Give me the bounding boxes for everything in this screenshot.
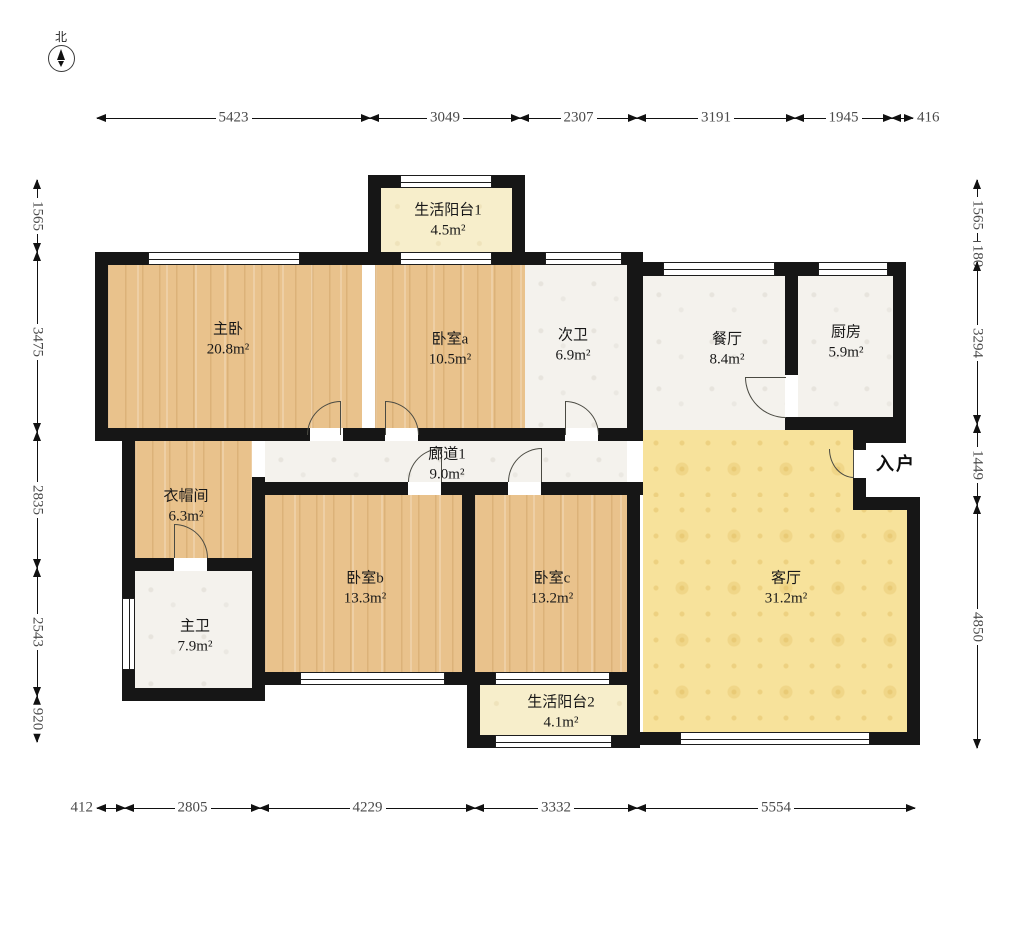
wall	[122, 688, 265, 701]
dimension-arrow	[33, 431, 41, 441]
window	[545, 252, 622, 265]
dimension-value: 1449	[969, 447, 986, 483]
wall	[252, 428, 265, 441]
dimension-arrow	[33, 179, 41, 189]
dimension-bottom: 5554	[637, 800, 915, 816]
dimension-top: 5423	[97, 110, 370, 126]
room-label-balcony-2: 生活阳台24.1m²	[527, 694, 595, 733]
window	[663, 262, 775, 276]
dimension-value: 3191	[698, 110, 734, 127]
room-label-corridor: 廊道19.0m²	[428, 446, 466, 485]
dimension-left: 3475	[29, 252, 45, 432]
room-label-bedroom-b: 卧室b13.3m²	[344, 570, 386, 609]
room-label-kitchen: 厨房5.9m²	[829, 324, 864, 363]
room-name: 主卧	[207, 321, 249, 341]
wall	[627, 482, 640, 748]
room-label-living: 客厅31.2m²	[765, 570, 807, 609]
wall	[252, 477, 265, 701]
dimension-left: 920	[29, 696, 45, 742]
wall	[122, 558, 174, 571]
dimension-value: 2307	[561, 110, 597, 127]
dimension-arrow	[519, 114, 529, 122]
dimension-top: 3049	[370, 110, 520, 126]
dimension-arrow	[474, 804, 484, 812]
window	[148, 252, 300, 265]
wall	[853, 430, 906, 443]
dimension-arrow	[96, 114, 106, 122]
dimension-arrow	[33, 733, 41, 743]
room-area: 13.2m²	[531, 589, 573, 609]
wall	[462, 482, 475, 685]
dimension-value: 3294	[969, 325, 986, 361]
dimension-arrow	[369, 114, 379, 122]
dimension-arrow	[973, 179, 981, 189]
compass-icon	[48, 45, 75, 72]
dimension-right: 3294	[969, 262, 985, 424]
dimension-left: 1565	[29, 180, 45, 252]
dimension-right: 1449	[969, 424, 985, 505]
dimension-arrow	[891, 114, 901, 122]
dimension-bottom: 4229	[260, 800, 475, 816]
compass-north-label: 北	[44, 31, 78, 43]
room-name: 廊道1	[428, 446, 466, 466]
room-living	[643, 497, 907, 732]
room-name: 生活阳台2	[527, 694, 595, 714]
dimension-arrow	[973, 423, 981, 433]
room-label-closet: 衣帽间6.3m²	[163, 488, 208, 527]
dimension-top: 2307	[520, 110, 637, 126]
dimension-value: 2835	[29, 482, 46, 518]
compass-needle-tail-icon	[58, 61, 64, 67]
dimension-left: 2835	[29, 432, 45, 568]
room-label-bedroom-c: 卧室c13.2m²	[531, 570, 573, 609]
room-label-master-bedroom: 主卧20.8m²	[207, 321, 249, 360]
dimension-arrow	[124, 804, 134, 812]
window	[680, 732, 870, 745]
room-name: 生活阳台1	[414, 202, 482, 222]
room-area: 31.2m²	[765, 589, 807, 609]
room-name: 卧室b	[344, 570, 386, 590]
room-area: 4.5m²	[414, 221, 482, 241]
dimension-arrow	[973, 504, 981, 514]
window	[818, 262, 888, 276]
wall	[95, 252, 108, 441]
dimension-arrow	[636, 804, 646, 812]
room-label-dining: 餐厅8.4m²	[710, 331, 745, 370]
dimension-arrow	[906, 804, 916, 812]
window	[300, 672, 445, 685]
room-area: 4.1m²	[527, 713, 595, 733]
room-name: 客厅	[765, 570, 807, 590]
dimension-bottom: 2805	[125, 800, 260, 816]
room-name: 餐厅	[710, 331, 745, 351]
compass-needle-icon	[57, 49, 65, 60]
wall	[252, 482, 408, 495]
dimension-arrow	[33, 695, 41, 705]
room-area: 20.8m²	[207, 340, 249, 360]
room-area: 13.3m²	[344, 589, 386, 609]
dimension-right: 4850	[969, 505, 985, 748]
dimension-left: 2543	[29, 568, 45, 696]
dimension-top: 416	[892, 110, 913, 126]
window	[400, 175, 492, 188]
room-label-balcony-1: 生活阳台14.5m²	[414, 202, 482, 241]
room-name: 卧室c	[531, 570, 573, 590]
compass: 北	[44, 31, 78, 72]
dimension-arrow	[973, 739, 981, 749]
wall	[785, 276, 798, 375]
dimension-value: 5554	[758, 800, 794, 817]
wall	[853, 478, 866, 510]
wall	[418, 428, 565, 441]
room-label-bedroom-a: 卧室a10.5m²	[429, 331, 471, 370]
room-area: 6.9m²	[556, 346, 591, 366]
room-area: 6.3m²	[163, 507, 208, 527]
room-name: 衣帽间	[163, 488, 208, 508]
room-name: 次卫	[556, 327, 591, 347]
dimension-value: 416	[914, 110, 943, 127]
room-area: 9.0m²	[428, 465, 466, 485]
dimension-value: 1565	[29, 198, 46, 234]
dimension-arrow	[259, 804, 269, 812]
room-area: 8.4m²	[710, 350, 745, 370]
dimension-value: 3475	[29, 324, 46, 360]
dimension-bottom: 412	[97, 800, 125, 816]
room-label-master-bath: 主卫7.9m²	[178, 618, 213, 657]
entrance-label: 入户	[876, 450, 916, 476]
wall	[907, 497, 920, 745]
window	[400, 252, 492, 265]
dimension-top: 1945	[795, 110, 892, 126]
dimension-value: 2543	[29, 614, 46, 650]
dimension-value: 3332	[538, 800, 574, 817]
room-label-second-bath: 次卫6.9m²	[556, 327, 591, 366]
dimension-arrow	[636, 114, 646, 122]
window	[122, 598, 135, 670]
dimension-top: 3191	[637, 110, 795, 126]
dimension-right: 1565	[969, 180, 985, 250]
dimension-arrow	[904, 114, 914, 122]
dimension-arrow	[96, 804, 106, 812]
dimension-arrow	[973, 261, 981, 271]
dimension-arrow	[33, 251, 41, 261]
dimension-arrow	[794, 114, 804, 122]
dimension-value: 4850	[969, 609, 986, 645]
dimension-value: 1565	[969, 197, 986, 233]
dimension-arrow	[33, 567, 41, 577]
dimension-value: 2805	[175, 800, 211, 817]
room-name: 厨房	[829, 324, 864, 344]
wall	[343, 428, 385, 441]
room-area: 5.9m²	[829, 343, 864, 363]
room-area: 10.5m²	[429, 350, 471, 370]
dimension-bottom: 3332	[475, 800, 637, 816]
dimension-value: 4229	[350, 800, 386, 817]
wall	[893, 276, 906, 430]
dimension-value: 1945	[826, 110, 862, 127]
dimension-value: 920	[29, 705, 46, 734]
wall	[785, 417, 906, 430]
room-area: 7.9m²	[178, 637, 213, 657]
room-living	[643, 430, 853, 497]
wall	[627, 252, 643, 441]
floor-plan: 北 入户 主卧20.8m²卧室a10.5m²生活阳台14.5m²次卫6.9m²餐…	[0, 0, 1016, 927]
window	[495, 735, 612, 748]
room-name: 主卫	[178, 618, 213, 638]
dimension-value: 412	[68, 800, 97, 817]
room-name: 卧室a	[429, 331, 471, 351]
dimension-value: 3049	[427, 110, 463, 127]
wall	[95, 428, 310, 441]
dimension-value: 5423	[216, 110, 252, 127]
window	[495, 672, 610, 685]
